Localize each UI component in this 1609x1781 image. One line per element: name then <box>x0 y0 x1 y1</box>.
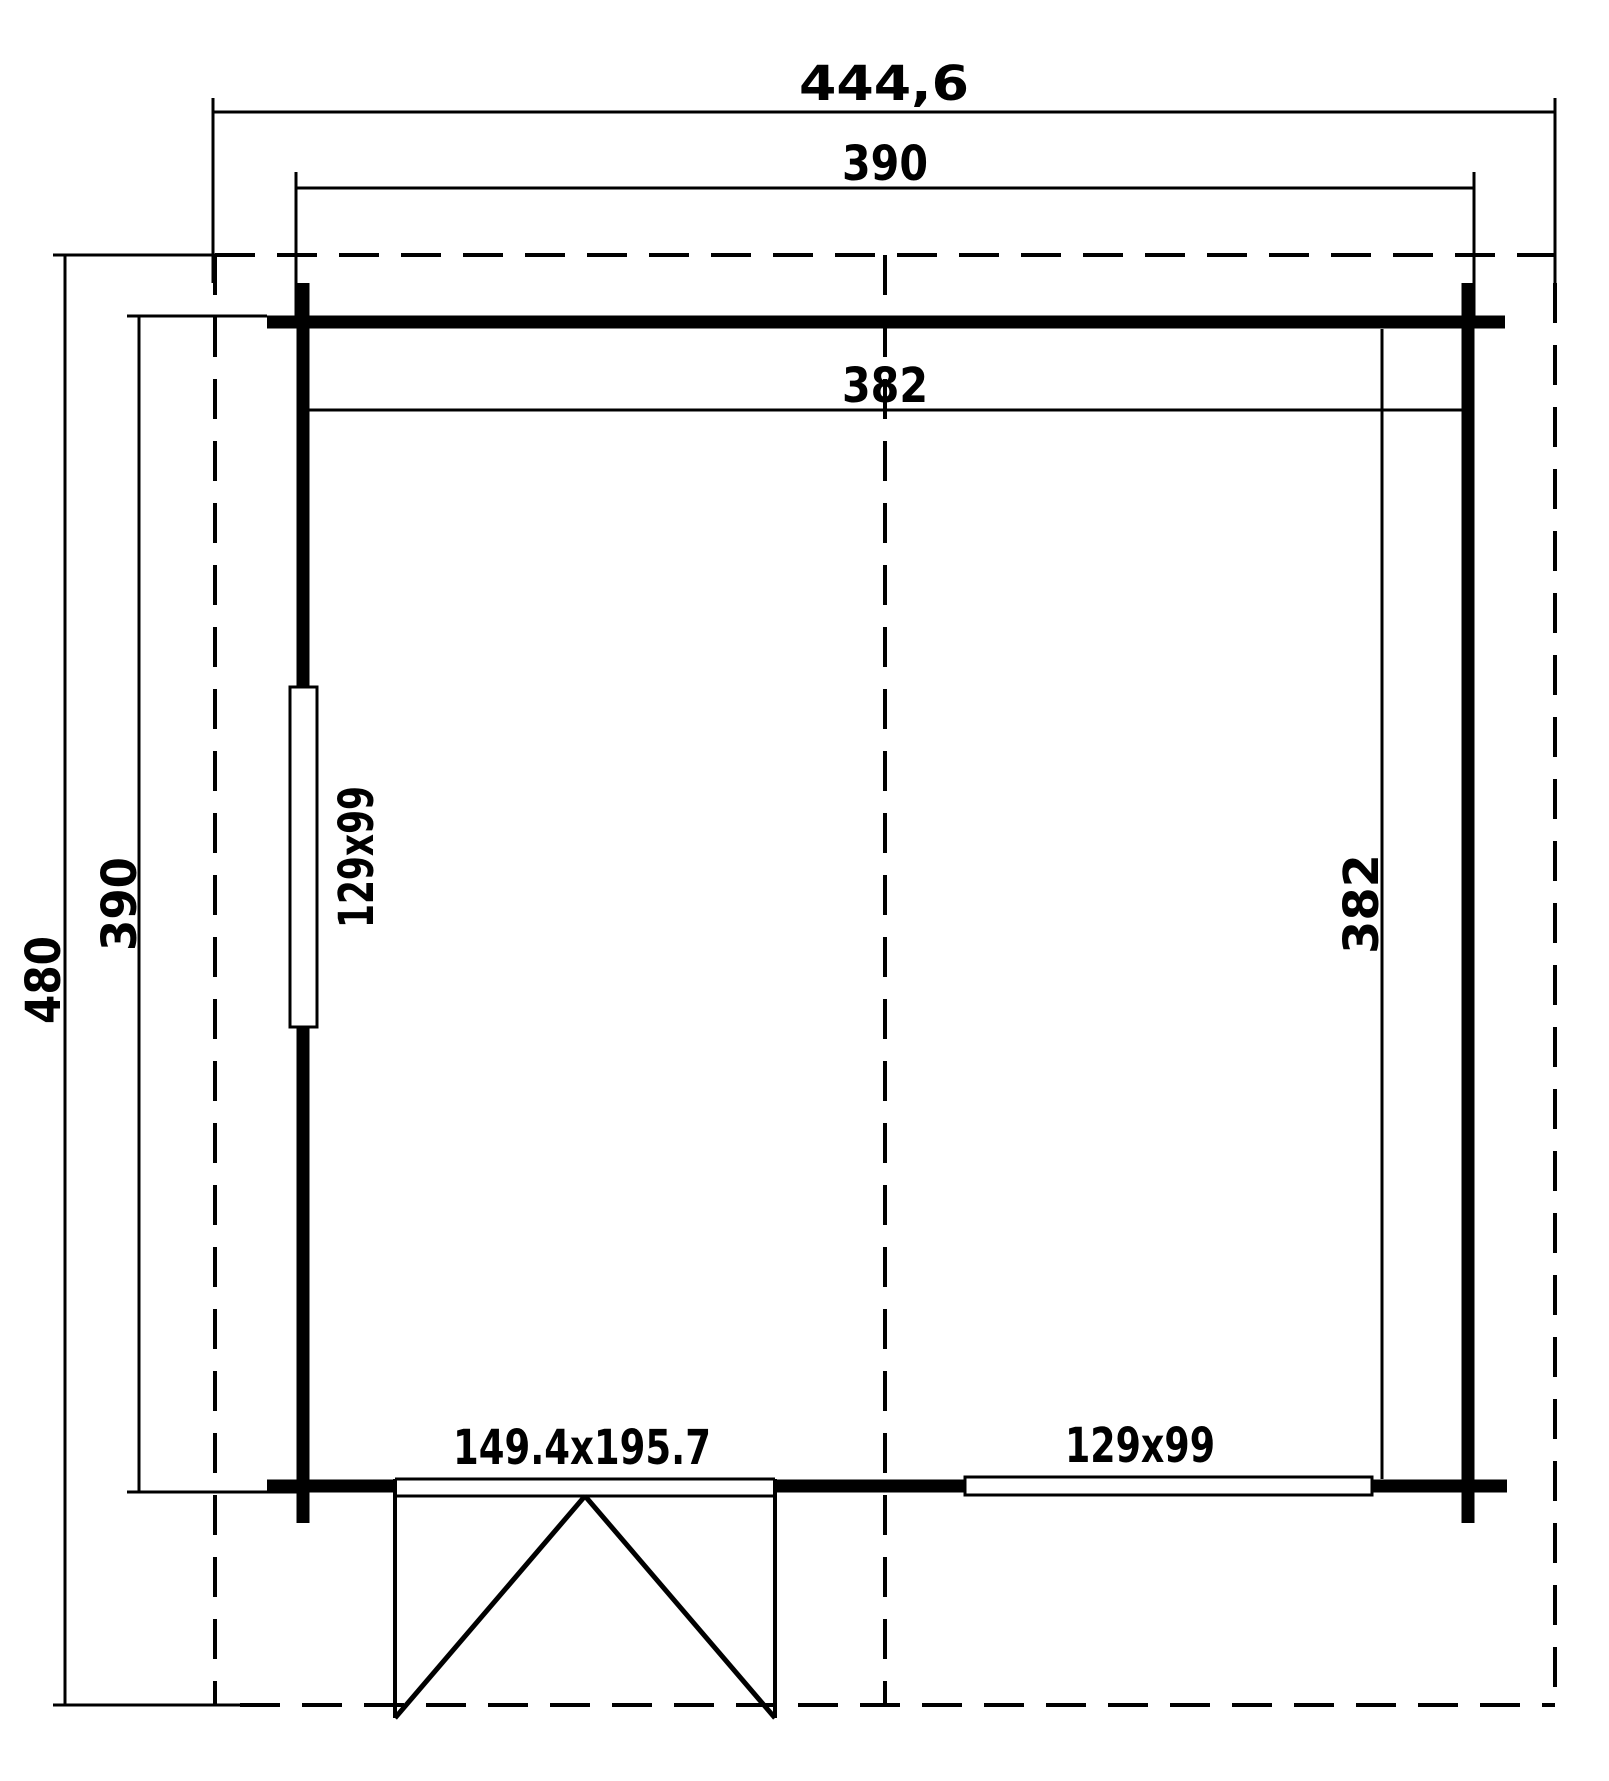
double-door <box>395 1479 775 1718</box>
label-left-window-size: 129x99 <box>329 786 385 928</box>
label-interior-depth: 382 <box>1334 854 1390 954</box>
label-door-size: 149.4x195.7 <box>453 1420 711 1476</box>
label-interior-width: 382 <box>842 358 928 414</box>
floor-plan-page: 444,6 390 382 480 390 129x99 382 149.4x1… <box>0 0 1609 1781</box>
dimension-lines <box>53 98 1555 1705</box>
label-bottom-window-size: 129x99 <box>1065 1418 1215 1474</box>
left-window <box>290 687 317 1027</box>
label-overall-width: 444,6 <box>799 56 969 112</box>
label-building-width: 390 <box>842 136 928 192</box>
label-building-depth: 390 <box>92 857 148 951</box>
door-swing-left-leaf <box>395 1496 585 1718</box>
bottom-window <box>965 1477 1372 1495</box>
door-swing-right-leaf <box>585 1496 775 1718</box>
label-overall-depth: 480 <box>16 936 72 1024</box>
floor-plan-canvas: 444,6 390 382 480 390 129x99 382 149.4x1… <box>0 0 1609 1781</box>
